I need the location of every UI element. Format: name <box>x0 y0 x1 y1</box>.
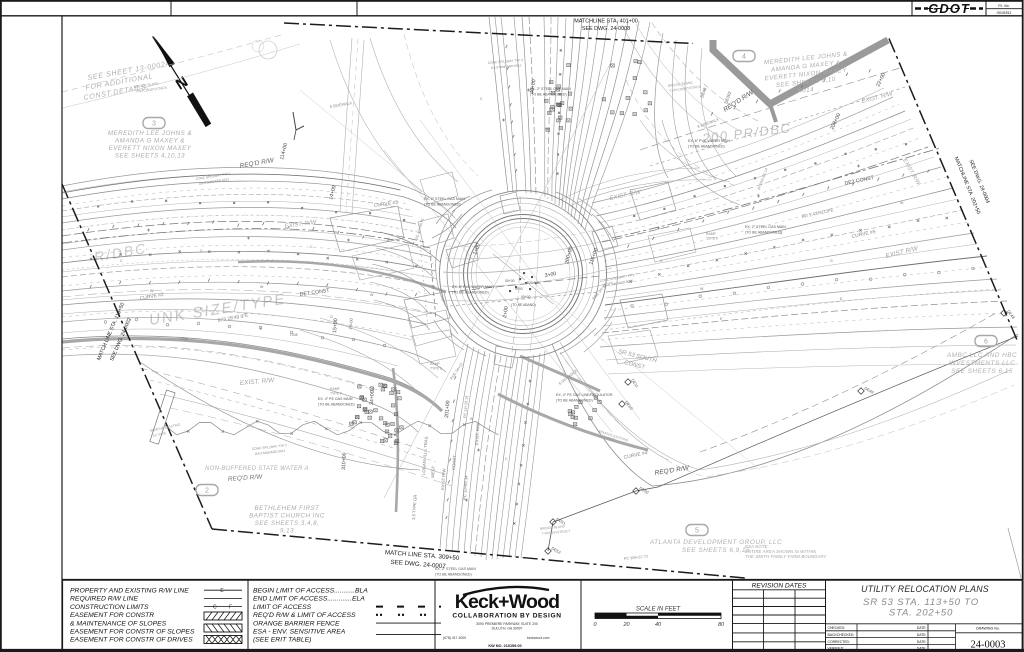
svg-text:F: F <box>229 605 232 611</box>
svg-text:15+00: 15+00 <box>332 318 339 333</box>
svg-text:(TO BE ABANDONED): (TO BE ABANDONED) <box>435 573 472 577</box>
svg-text:C: C <box>505 457 508 461</box>
svg-text:MATCHLINE STA. 401+00: MATCHLINE STA. 401+00 <box>574 19 637 25</box>
svg-text:RAMP: RAMP <box>706 232 717 236</box>
svg-text:AMBC LLC AND HBC: AMBC LLC AND HBC <box>946 352 1017 359</box>
svg-text:00+00: 00+00 <box>505 279 515 283</box>
svg-text:W: W <box>150 289 154 293</box>
svg-text:9,13: 9,13 <box>280 528 294 535</box>
svg-text:DATE:: DATE: <box>917 626 927 630</box>
svg-text:ESA - ENV. SENSITIVE AREA: ESA - ENV. SENSITIVE AREA <box>253 629 346 636</box>
svg-text:(TO BE ABANDONED): (TO BE ABANDONED) <box>318 403 355 407</box>
svg-text:C: C <box>120 259 123 263</box>
svg-text:SEE SHEETS 4,10,13: SEE SHEETS 4,10,13 <box>115 153 185 160</box>
svg-text:G: G <box>830 259 833 263</box>
svg-text:TYPE 9: TYPE 9 <box>706 237 718 241</box>
svg-text:REQUIRED R/W LINE: REQUIRED R/W LINE <box>70 596 138 603</box>
svg-text:LIMIT OF ACCESS: LIMIT OF ACCESS <box>253 604 312 611</box>
svg-text:SEE SHEETS 6,9,15: SEE SHEETS 6,9,15 <box>682 547 750 554</box>
svg-text:C: C <box>213 605 217 611</box>
svg-text:(TO BE ABANDONED): (TO BE ABANDONED) <box>556 399 593 403</box>
svg-text:LINE: LINE <box>180 337 189 341</box>
svg-text:EASEMENT FOR CONSTR OF DRIVES: EASEMENT FOR CONSTR OF DRIVES <box>70 637 193 644</box>
svg-text:15+00: 15+00 <box>348 317 354 330</box>
svg-text:BAPTIST CHURCH INC: BAPTIST CHURCH INC <box>249 513 325 520</box>
svg-text:G: G <box>200 307 203 311</box>
svg-text:EX. 2″ STEEL GAS MAIN: EX. 2″ STEEL GAS MAIN <box>424 197 465 201</box>
svg-text:C: C <box>200 249 203 253</box>
svg-text:2: 2 <box>205 488 209 495</box>
svg-text:ORANGE BARRIER FENCE: ORANGE BARRIER FENCE <box>253 620 340 627</box>
svg-text:keckwood.com: keckwood.com <box>527 636 550 640</box>
svg-text:EASEMENT FOR CONSTR: EASEMENT FOR CONSTR <box>70 612 154 619</box>
svg-text:EX. 6″ PVC WATER MAIN: EX. 6″ PVC WATER MAIN <box>688 139 730 143</box>
svg-text:EX. 6″ PVC WATER MAIN: EX. 6″ PVC WATER MAIN <box>452 285 494 289</box>
svg-text:W: W <box>260 285 264 289</box>
svg-text:INVESTMENTS LLC: INVESTMENTS LLC <box>949 360 1015 367</box>
svg-text:DATE:: DATE: <box>917 633 927 637</box>
svg-text:TYPE 9: TYPE 9 <box>430 367 442 371</box>
svg-text:(TO BE ABANDONED): (TO BE ABANDONED) <box>424 203 461 207</box>
svg-text:DATE:: DATE: <box>917 640 927 644</box>
svg-text:3: 3 <box>152 121 156 128</box>
svg-text:(TO BE ABANDONED): (TO BE ABANDONED) <box>530 93 567 97</box>
svg-text:Keck+Wood: Keck+Wood <box>455 591 560 613</box>
svg-text:6: 6 <box>984 339 988 346</box>
svg-text:(SEE ERIT TABLE): (SEE ERIT TABLE) <box>253 637 311 644</box>
svg-text:EX. 2″ STEEL GAS MAIN: EX. 2″ STEEL GAS MAIN <box>745 225 786 229</box>
svg-text:W: W <box>470 417 474 421</box>
svg-text:C: C <box>660 259 663 263</box>
svg-text:MEREDITH LEE JOHNS &: MEREDITH LEE JOHNS & <box>108 130 192 137</box>
svg-text:CONST: CONST <box>451 455 457 470</box>
svg-text:COLLABORATION BY DESIGN: COLLABORATION BY DESIGN <box>452 613 561 620</box>
svg-text:80: 80 <box>718 622 725 628</box>
svg-text:VERIFIED:: VERIFIED: <box>828 647 845 651</box>
svg-text:AMANDA G MAXEY &: AMANDA G MAXEY & <box>114 138 185 145</box>
svg-text:(678) 417-4000: (678) 417-4000 <box>443 636 466 640</box>
svg-text:34+00: 34+00 <box>369 390 376 405</box>
svg-text:EVERETT NIXON MAXEY: EVERETT NIXON MAXEY <box>109 145 192 152</box>
svg-text:NON-BUFFERED STATE WATER A: NON-BUFFERED STATE WATER A <box>205 466 309 472</box>
svg-text:REQ'D R/W & LIMIT OF ACCESS: REQ'D R/W & LIMIT OF ACCESS <box>253 612 356 619</box>
svg-text:SEE DWG. 24-0008: SEE DWG. 24-0008 <box>582 26 630 32</box>
svg-text:C: C <box>310 245 313 249</box>
svg-text:PROPERTY AND EXISTING R/W LINE: PROPERTY AND EXISTING R/W LINE <box>70 588 189 595</box>
svg-text:& MAINTENANCE OF SLOPES: & MAINTENANCE OF SLOPES <box>70 620 167 627</box>
svg-text:SEE SHEETS 6,15: SEE SHEETS 6,15 <box>951 368 1013 375</box>
svg-text:SR 53 STA. 113+50 TO: SR 53 STA. 113+50 TO <box>863 597 979 608</box>
svg-text:WEST: WEST <box>430 465 436 478</box>
svg-text:(TO BE ABANDONED): (TO BE ABANDONED) <box>688 145 725 149</box>
svg-text:CONSTRUCTION LIMITS: CONSTRUCTION LIMITS <box>70 604 149 611</box>
svg-text:EX. 2″ STEEL GAS MAIN: EX. 2″ STEEL GAS MAIN <box>435 567 476 571</box>
svg-text:SEE SHEETS 3,4,8,: SEE SHEETS 3,4,8, <box>255 520 320 527</box>
svg-text:W: W <box>900 201 904 205</box>
svg-text:24-0003: 24-0003 <box>971 640 1006 651</box>
svg-text:CORRECTED:: CORRECTED: <box>828 640 850 644</box>
svg-text:5: 5 <box>695 528 699 535</box>
svg-text:KW NO. 210159.00: KW NO. 210159.00 <box>488 644 521 648</box>
svg-text:THE SMITH FAMILY FARM BOUNDARY: THE SMITH FAMILY FARM BOUNDARY <box>745 554 828 559</box>
svg-text:DULUTH, GA 30097: DULUTH, GA 30097 <box>492 627 523 631</box>
svg-text:W: W <box>545 127 549 131</box>
svg-text:END LIMIT OF ACCESS...........: END LIMIT OF ACCESS.............ELA <box>253 596 365 603</box>
svg-text:(TO BE ABANDONED): (TO BE ABANDONED) <box>745 231 782 235</box>
svg-text:LINE: LINE <box>290 333 299 337</box>
svg-text:DRAWING No.: DRAWING No. <box>976 626 1000 630</box>
svg-text:RAMP: RAMP <box>430 362 441 366</box>
svg-text:DATE:: DATE: <box>917 647 927 651</box>
svg-text:W: W <box>700 287 704 291</box>
svg-text:(TO BE ABAND): (TO BE ABAND) <box>511 303 536 307</box>
svg-text:STA. 202+50: STA. 202+50 <box>889 608 953 619</box>
svg-text:4: 4 <box>742 54 746 61</box>
svg-text:40: 40 <box>655 622 662 628</box>
svg-text:EX. 2″ STEEL GAS MAIN: EX. 2″ STEEL GAS MAIN <box>530 87 571 91</box>
svg-text:EX. 4″ PE GAS LINE/REGULATOR: EX. 4″ PE GAS LINE/REGULATOR <box>556 393 613 397</box>
svg-text:UTILITY RELOCATION PLANS: UTILITY RELOCATION PLANS <box>861 584 989 594</box>
svg-text:EX. 4″ PE GAS MAIN: EX. 4″ PE GAS MAIN <box>318 397 353 401</box>
svg-text:C: C <box>480 97 483 101</box>
svg-text:P.I. No.: P.I. No. <box>998 4 1010 8</box>
svg-text:0016351: 0016351 <box>997 11 1012 15</box>
svg-text:20: 20 <box>622 622 630 628</box>
svg-text:(TO BE ABANDONED): (TO BE ABANDONED) <box>452 291 489 295</box>
svg-text:CHECKED:: CHECKED: <box>828 626 846 630</box>
svg-text:REVISION DATES: REVISION DATES <box>752 583 807 590</box>
svg-text:3090 PREMIERE PARKWAY, SUITE 2: 3090 PREMIERE PARKWAY, SUITE 200 <box>476 622 538 626</box>
svg-text:310+00: 310+00 <box>341 452 348 470</box>
svg-text:BACKCHECKED:: BACKCHECKED: <box>828 633 855 637</box>
svg-text:RAMP: RAMP <box>330 387 341 391</box>
svg-text:BEGIN LIMIT OF ACCESS.........: BEGIN LIMIT OF ACCESS...........BLA <box>253 588 368 595</box>
svg-text:SCALE IN FEET: SCALE IN FEET <box>636 607 682 613</box>
svg-text:TYPE 9: TYPE 9 <box>330 392 342 396</box>
svg-text:W: W <box>370 293 374 297</box>
svg-text:BETHLEHEM FIRST: BETHLEHEM FIRST <box>255 505 321 512</box>
svg-text:EASEMENT FOR CONSTR OF SLOPES: EASEMENT FOR CONSTR OF SLOPES <box>70 629 195 636</box>
